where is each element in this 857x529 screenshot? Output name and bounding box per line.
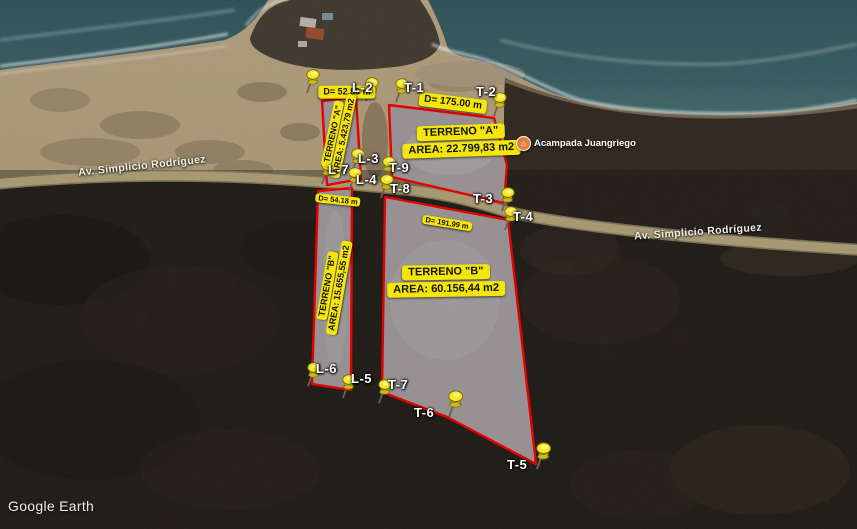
pin-label-t7[interactable]: T-7	[388, 377, 408, 392]
google-earth-watermark: Google Earth	[8, 498, 94, 514]
pin-label-l6[interactable]: L-6	[316, 361, 337, 376]
poi-name[interactable]: Acampada Juangriego	[534, 138, 636, 149]
pin-label-t8[interactable]: T-8	[390, 181, 410, 196]
pin-label-t5[interactable]: T-5	[507, 457, 527, 472]
pin-label-l5[interactable]: L-5	[351, 371, 372, 386]
label-terreno-b[interactable]: TERRENO "B" AREA: 60.156,44 m2	[387, 262, 505, 300]
pin-label-l3[interactable]: L-3	[358, 151, 379, 166]
pin-label-t6[interactable]: T-6	[414, 405, 434, 420]
pin-label-t4[interactable]: T-4	[513, 209, 533, 224]
pin-label-t1[interactable]: T-1	[404, 80, 424, 95]
terreno-b-name[interactable]: TERRENO "B"	[402, 264, 489, 281]
poi-acampada-juangriego[interactable]: ⌂ Acampada Juangriego	[516, 136, 636, 151]
terreno-a-name[interactable]: TERRENO "A"	[417, 123, 505, 141]
pin-label-l4[interactable]: L-4	[356, 172, 377, 187]
label-terreno-a[interactable]: TERRENO "A" AREA: 22.799,83 m2	[402, 121, 521, 161]
lodging-pin-icon[interactable]: ⌂	[516, 136, 531, 151]
pin-label-l7[interactable]: L-7	[328, 162, 349, 177]
pin-label-l2[interactable]: L-2	[352, 80, 373, 95]
pin-label-t3[interactable]: T-3	[473, 191, 493, 206]
terreno-a-area[interactable]: AREA: 22.799,83 m2	[402, 140, 520, 159]
pin-label-t2[interactable]: T-2	[476, 84, 496, 99]
pin-label-t9[interactable]: T-9	[389, 160, 409, 175]
google-earth-viewport: D= 52.80 m D= 175.00 m D= 54.18 m D= 191…	[0, 0, 857, 529]
terreno-b-area[interactable]: AREA: 60.156,44 m2	[387, 281, 505, 298]
